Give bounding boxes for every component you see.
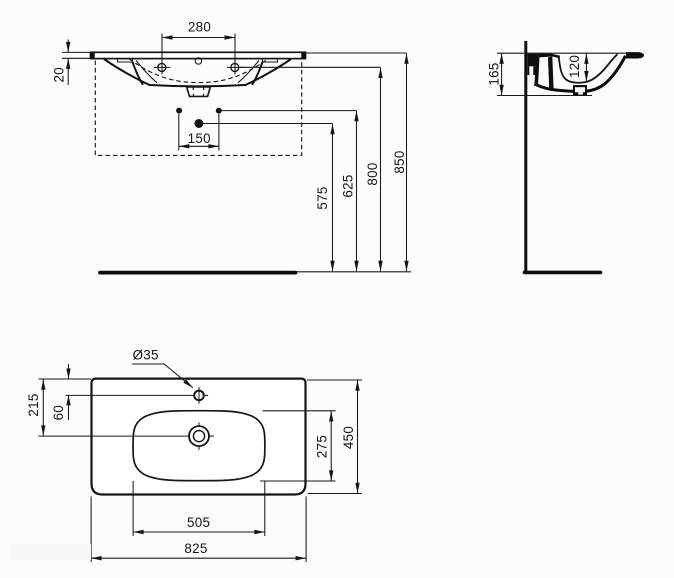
svg-text:120: 120 — [567, 55, 582, 78]
svg-text:505: 505 — [187, 515, 210, 530]
svg-text:280: 280 — [188, 20, 211, 35]
svg-text:825: 825 — [184, 541, 207, 556]
svg-text:850: 850 — [392, 150, 407, 173]
svg-text:150: 150 — [188, 131, 211, 146]
svg-text:215: 215 — [26, 393, 41, 416]
svg-text:625: 625 — [341, 174, 356, 197]
svg-text:575: 575 — [315, 186, 330, 209]
svg-text:450: 450 — [341, 426, 356, 449]
svg-text:60: 60 — [51, 405, 66, 421]
svg-text:Ø35: Ø35 — [133, 348, 159, 363]
svg-text:275: 275 — [314, 435, 329, 458]
svg-text:800: 800 — [365, 162, 380, 185]
svg-text:20: 20 — [51, 67, 66, 83]
svg-text:165: 165 — [487, 62, 502, 85]
